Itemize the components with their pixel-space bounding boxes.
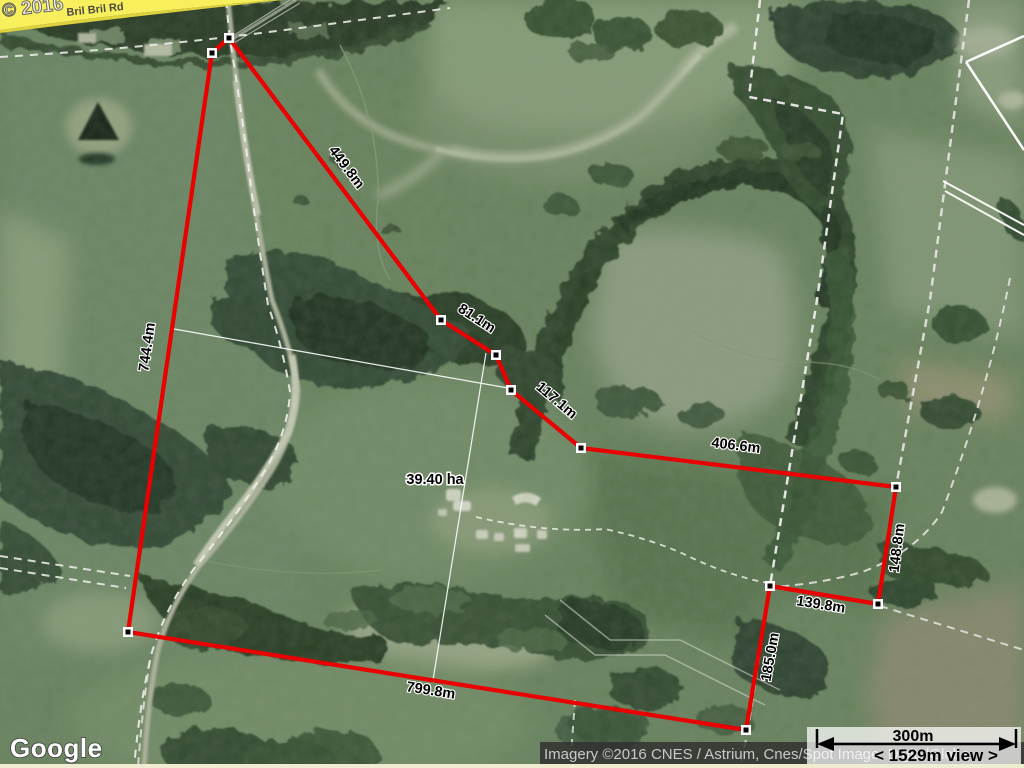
svg-text:39.40 ha: 39.40 ha — [406, 472, 464, 488]
svg-text:Google: Google — [10, 733, 103, 763]
svg-text:< 1529m view >: < 1529m view > — [874, 746, 998, 765]
svg-text:300m: 300m — [893, 728, 934, 745]
